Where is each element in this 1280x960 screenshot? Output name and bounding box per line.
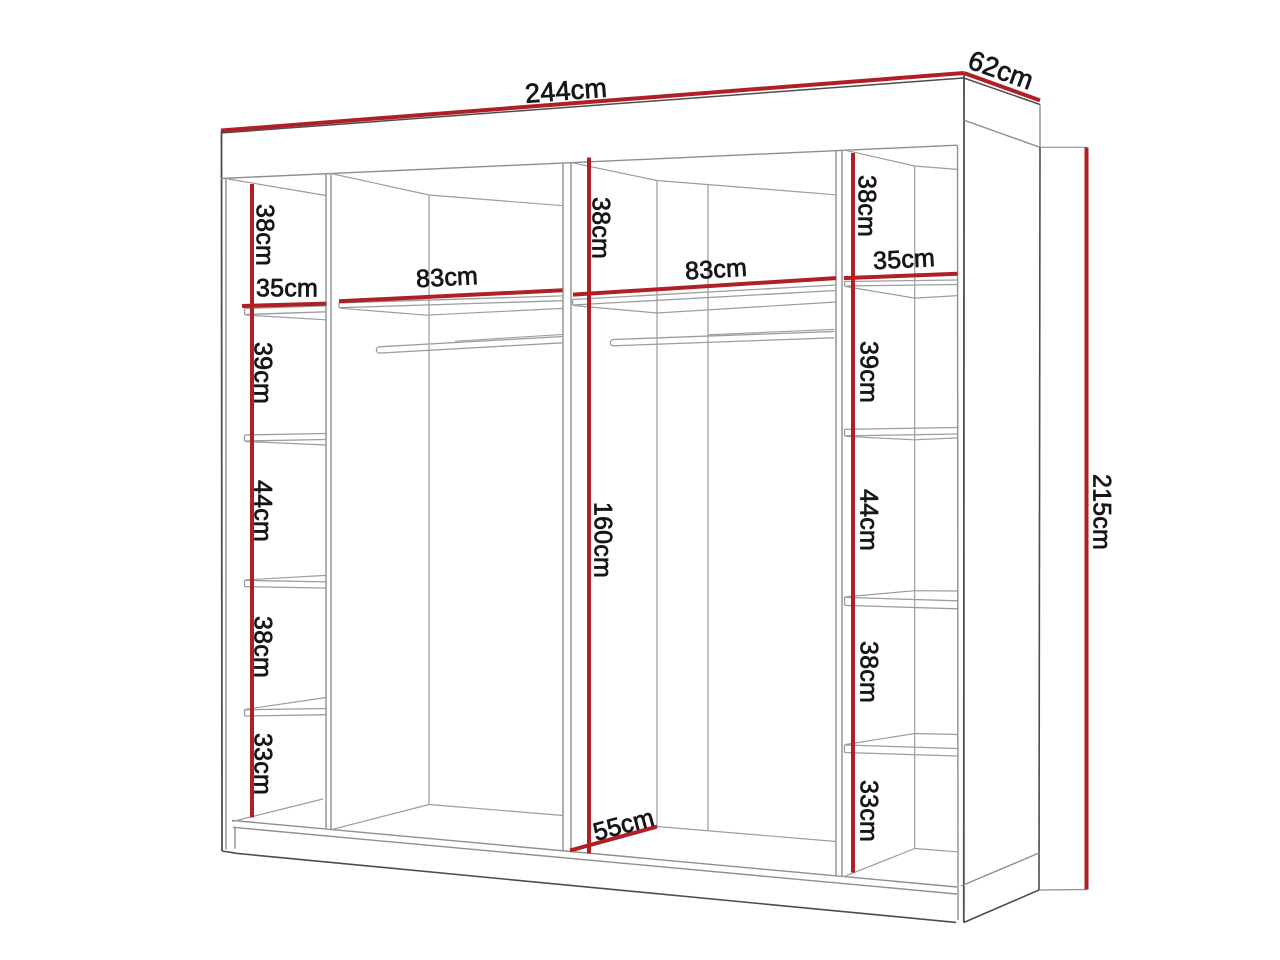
svg-text:215cm: 215cm xyxy=(1087,474,1115,550)
svg-text:44cm: 44cm xyxy=(248,480,276,542)
svg-text:38cm: 38cm xyxy=(852,175,880,237)
svg-text:160cm: 160cm xyxy=(588,502,616,578)
svg-text:33cm: 33cm xyxy=(854,780,882,842)
svg-text:244cm: 244cm xyxy=(524,73,608,109)
svg-text:38cm: 38cm xyxy=(854,641,882,703)
svg-text:33cm: 33cm xyxy=(248,733,276,795)
svg-text:35cm: 35cm xyxy=(872,244,935,275)
svg-text:83cm: 83cm xyxy=(415,262,478,293)
svg-text:39cm: 39cm xyxy=(854,341,882,403)
svg-text:35cm: 35cm xyxy=(256,275,318,303)
svg-text:44cm: 44cm xyxy=(854,489,882,551)
svg-text:39cm: 39cm xyxy=(248,342,276,404)
svg-text:38cm: 38cm xyxy=(586,197,614,259)
svg-text:38cm: 38cm xyxy=(248,616,276,678)
svg-text:38cm: 38cm xyxy=(250,204,278,266)
svg-text:83cm: 83cm xyxy=(684,254,748,286)
